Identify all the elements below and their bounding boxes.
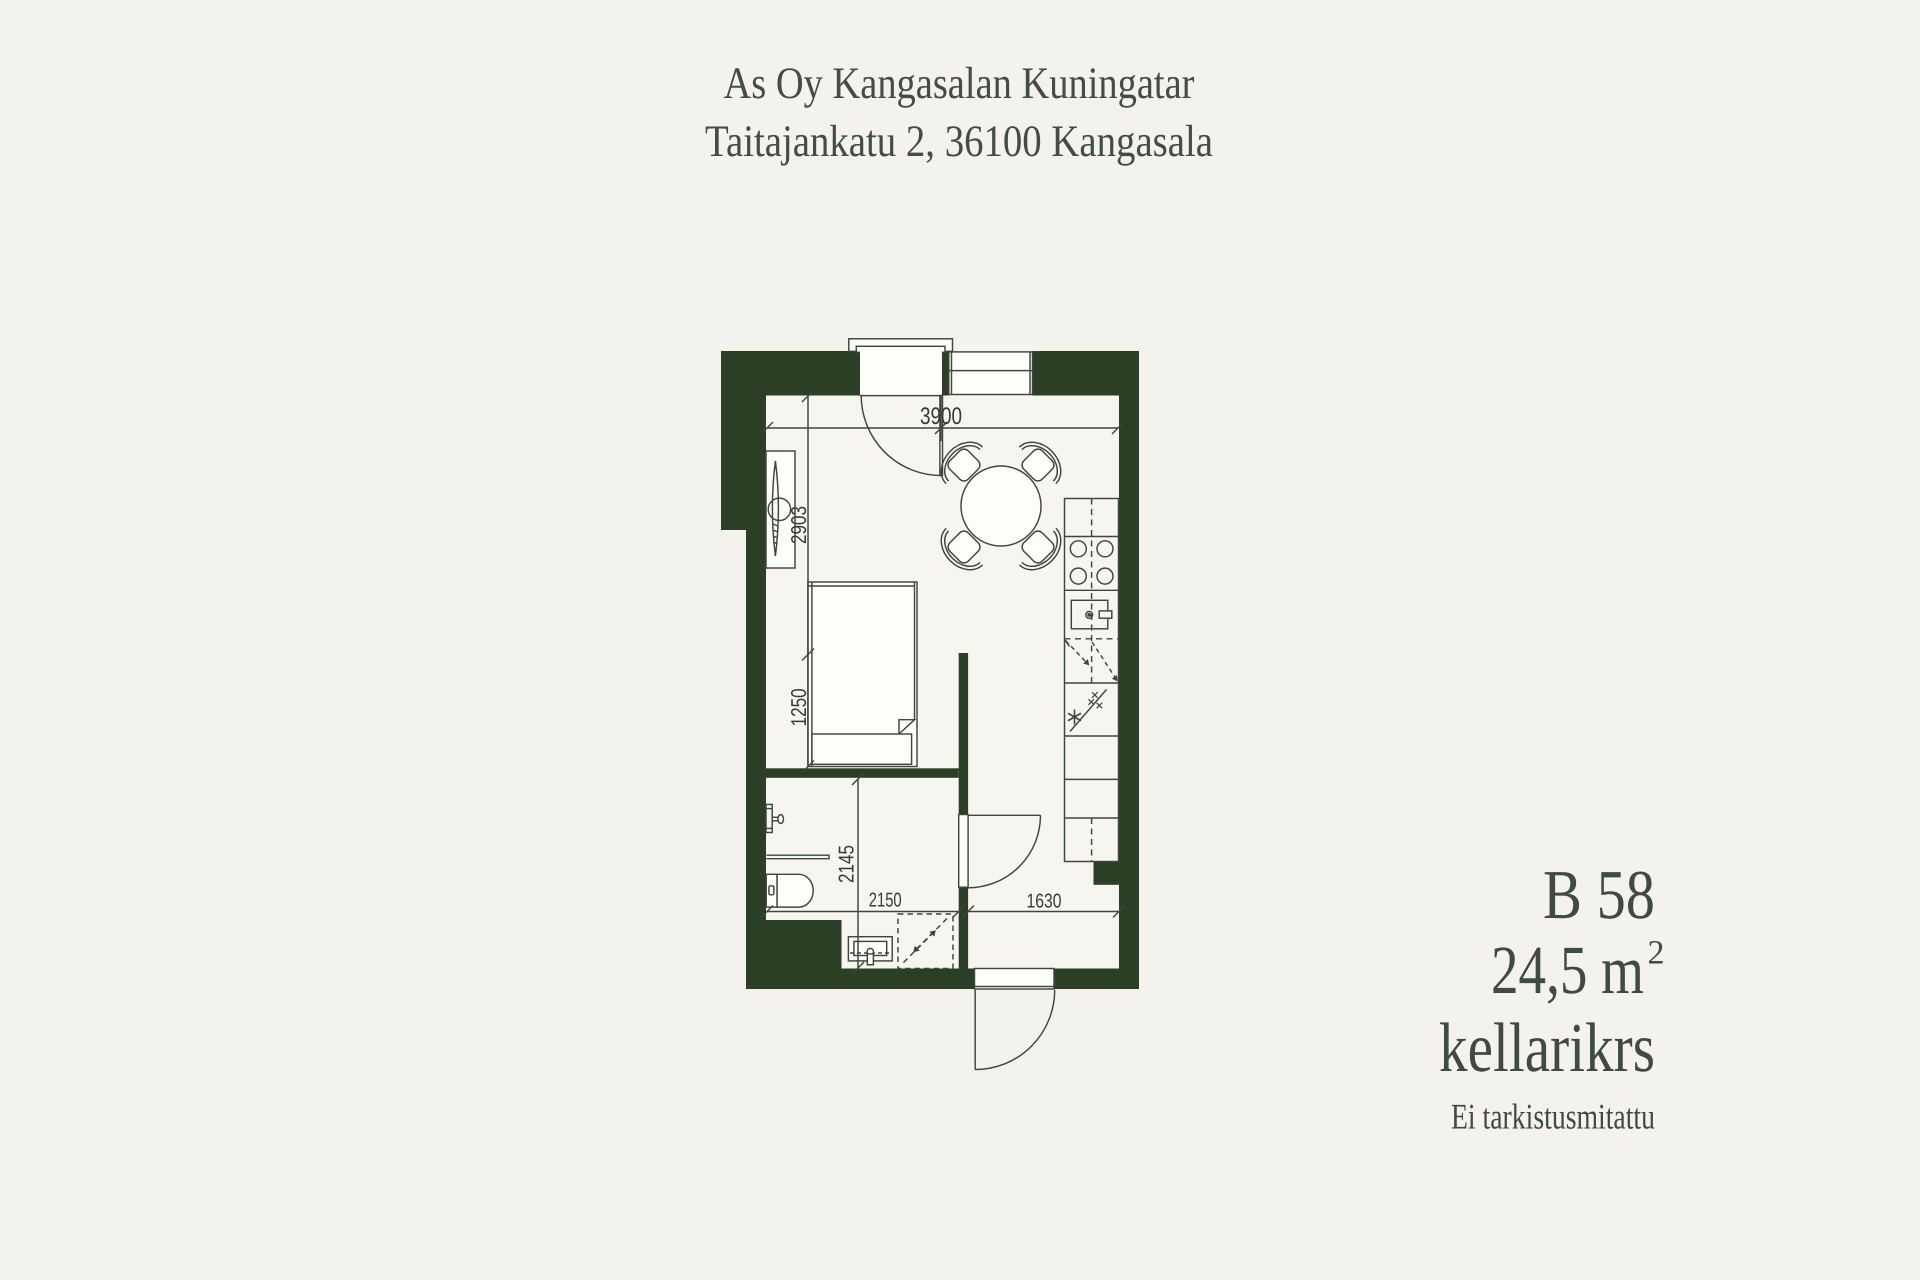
svg-text:2145: 2145	[834, 845, 858, 883]
svg-text:2: 2	[1648, 935, 1665, 972]
svg-text:Ei tarkistusmitattu: Ei tarkistusmitattu	[1451, 1097, 1655, 1137]
svg-text:As Oy Kangasalan Kuningatar: As Oy Kangasalan Kuningatar	[724, 58, 1195, 108]
svg-text:B 58: B 58	[1543, 857, 1655, 934]
svg-text:3900: 3900	[920, 403, 962, 430]
svg-text:2150: 2150	[869, 890, 902, 912]
svg-text:24,5 m: 24,5 m	[1491, 932, 1644, 1008]
svg-text:1250: 1250	[787, 688, 811, 726]
svg-text:kellarikrs: kellarikrs	[1439, 1010, 1655, 1087]
svg-text:2903: 2903	[787, 506, 811, 544]
svg-text:1630: 1630	[1027, 891, 1062, 913]
svg-text:Taitajankatu 2, 36100 Kangasal: Taitajankatu 2, 36100 Kangasala	[705, 116, 1213, 166]
